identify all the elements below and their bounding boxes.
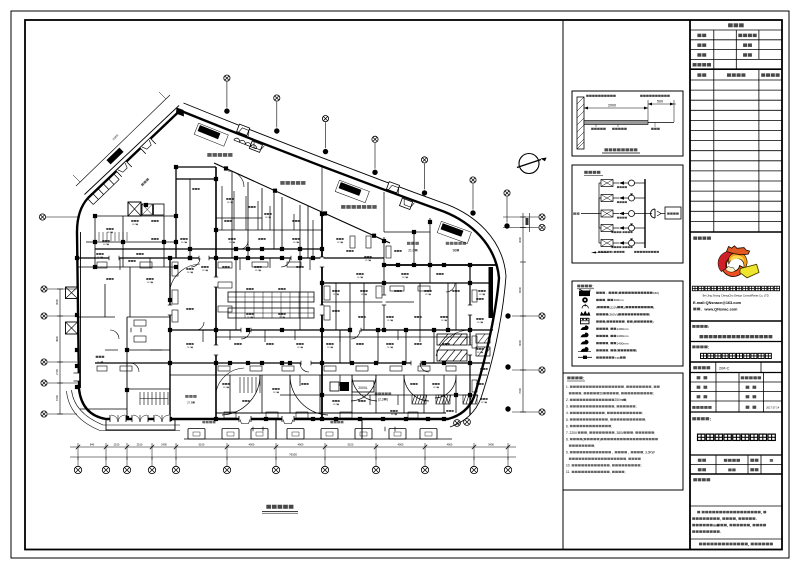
svg-text:;: ; xyxy=(654,431,655,435)
svg-text:,: , xyxy=(581,392,582,396)
svg-text:3000: 3000 xyxy=(518,237,522,243)
svg-text:,: , xyxy=(587,431,588,435)
svg-text:,: , xyxy=(615,405,616,409)
svg-text:,: , xyxy=(761,511,762,515)
svg-text:1400mm: 1400mm xyxy=(616,327,628,331)
svg-text:2700: 2700 xyxy=(55,369,59,375)
svg-text:;: ; xyxy=(625,470,626,474)
svg-text:300mm: 300mm xyxy=(613,298,624,302)
svg-text:9.: 9. xyxy=(566,451,569,455)
svg-text:;: ; xyxy=(642,411,643,415)
svg-text::: : xyxy=(708,345,709,350)
svg-text:8.: 8. xyxy=(566,437,569,441)
svg-text:,: , xyxy=(619,392,620,396)
svg-text:9000: 9000 xyxy=(518,340,522,346)
svg-text:736: 736 xyxy=(615,356,620,360)
svg-text:;: ; xyxy=(594,444,595,448)
svg-text:;: ; xyxy=(611,424,612,428)
svg-text:2000: 2000 xyxy=(608,104,616,108)
svg-text:): ) xyxy=(653,305,654,309)
svg-text:E-mail:QNsnace@163.com: E-mail:QNsnace@163.com xyxy=(693,301,742,305)
svg-text:;: ; xyxy=(626,398,627,402)
svg-text:,: , xyxy=(608,349,609,353)
svg-text:96: 96 xyxy=(453,249,457,253)
svg-text:4600: 4600 xyxy=(55,336,59,342)
svg-text::: : xyxy=(633,431,634,435)
svg-text:76500: 76500 xyxy=(289,453,297,457)
svg-text:.: . xyxy=(756,517,757,521)
svg-text:,: , xyxy=(652,385,653,389)
svg-text::: : xyxy=(708,324,709,329)
svg-text:840: 840 xyxy=(90,443,95,447)
svg-text:2017.07.14: 2017.07.14 xyxy=(766,406,780,410)
svg-text:4900: 4900 xyxy=(447,443,453,447)
svg-text:,: , xyxy=(727,524,728,528)
svg-text:,: , xyxy=(748,543,749,547)
svg-text:2510: 2510 xyxy=(137,443,143,447)
svg-text:.: . xyxy=(624,385,625,389)
svg-text:4900: 4900 xyxy=(249,443,255,447)
svg-text:(220V: (220V xyxy=(609,305,618,309)
svg-text:27.3: 27.3 xyxy=(187,401,193,405)
svg-text:,: , xyxy=(626,457,627,461)
svg-text:4.: 4. xyxy=(566,411,569,415)
svg-text:7. 220V: 7. 220V xyxy=(566,431,578,435)
svg-text:56: 56 xyxy=(599,392,603,396)
svg-text:4900: 4900 xyxy=(298,443,304,447)
svg-text:(380V)(: (380V)( xyxy=(608,313,619,317)
svg-text:7000: 7000 xyxy=(518,388,522,394)
svg-text:4900: 4900 xyxy=(398,443,404,447)
svg-text:6.: 6. xyxy=(566,424,569,428)
svg-text:2.: 2. xyxy=(566,398,569,402)
svg-text:1.: 1. xyxy=(566,385,569,389)
svg-text:3400: 3400 xyxy=(488,443,494,447)
svg-text:3000: 3000 xyxy=(55,299,59,305)
svg-text:,: , xyxy=(610,464,611,468)
svg-text:;: ; xyxy=(641,464,642,468)
svg-text:9000: 9000 xyxy=(518,287,522,293)
svg-text:330): 330) xyxy=(653,291,659,295)
svg-text:;: ; xyxy=(645,418,646,422)
svg-text:): ) xyxy=(387,398,388,402)
svg-text:,: , xyxy=(608,334,609,338)
svg-text:,: , xyxy=(608,327,609,331)
svg-text:, 380V: , 380V xyxy=(615,431,625,435)
svg-text:1500: 1500 xyxy=(55,395,59,401)
svg-text:,: , xyxy=(720,517,721,521)
svg-text:www.QNsnac.com: www.QNsnac.com xyxy=(703,308,738,312)
svg-text:,: , xyxy=(625,320,626,324)
svg-text:(2,3: (2,3 xyxy=(378,398,384,402)
svg-text::: : xyxy=(592,285,593,289)
svg-text:1400mm: 1400mm xyxy=(616,334,628,338)
svg-text:,: , xyxy=(610,470,611,474)
svg-text:): ) xyxy=(653,320,654,324)
svg-text:.: . xyxy=(720,530,721,534)
svg-text:,: , xyxy=(605,411,606,415)
svg-text:): ) xyxy=(649,313,650,317)
svg-text:): ) xyxy=(600,437,601,441)
svg-text:,: , xyxy=(608,418,609,422)
svg-text:;: ; xyxy=(653,392,654,396)
svg-text:21.0: 21.0 xyxy=(408,249,414,253)
svg-text:20#-C: 20#-C xyxy=(719,367,730,371)
svg-text:5100: 5100 xyxy=(348,443,354,447)
svg-text:5.: 5. xyxy=(566,418,569,422)
svg-text:,: , xyxy=(750,524,751,528)
svg-text:2400: 2400 xyxy=(161,443,167,447)
svg-text:5100: 5100 xyxy=(199,443,205,447)
svg-text:2000L: 2000L xyxy=(358,386,368,390)
svg-text:500: 500 xyxy=(657,100,663,104)
svg-text:10.: 10. xyxy=(566,464,571,468)
svg-text:11.: 11. xyxy=(566,470,570,474)
svg-text:3.: 3. xyxy=(566,405,569,409)
svg-text:2100: 2100 xyxy=(114,443,120,447)
svg-text:1400mm: 1400mm xyxy=(616,341,628,345)
svg-text:,: , xyxy=(608,341,609,345)
svg-text::: : xyxy=(583,376,584,381)
svg-text:,: , xyxy=(736,517,737,521)
svg-text:): ) xyxy=(636,349,637,353)
svg-text:; 3.0KW: ; 3.0KW xyxy=(643,451,654,455)
svg-text:;: ; xyxy=(636,405,637,409)
svg-text:Bei Jing Strong ChengChu Desi: Bei Jing Strong ChengChu Design ConsultR… xyxy=(703,294,770,298)
svg-text:,: , xyxy=(605,298,606,302)
